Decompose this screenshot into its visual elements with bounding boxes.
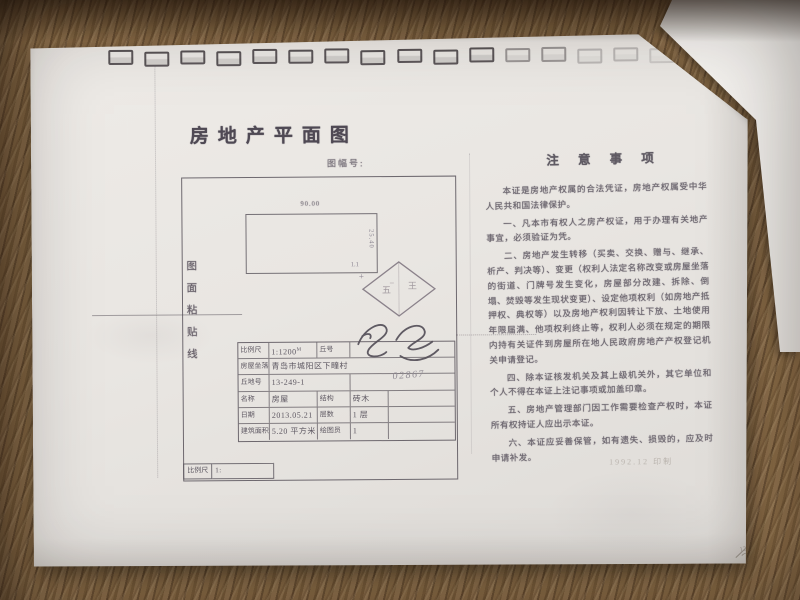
overlapping-sheet bbox=[0, 0, 800, 600]
desk-photo: 房地产平面图 图幅号: 图 面 粘 贴 线 90.00 25.40 1.1 + bbox=[0, 0, 800, 600]
overlapping-sheet-wrap bbox=[0, 0, 800, 600]
